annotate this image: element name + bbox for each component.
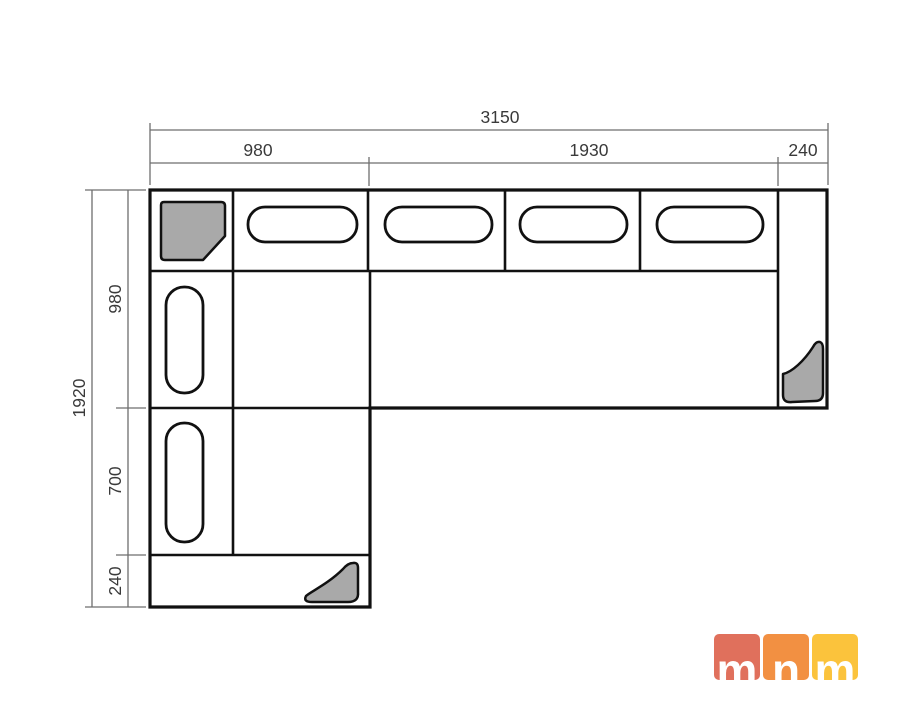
back-cushion-2: [385, 207, 492, 242]
mnm-logo: m n m: [714, 634, 858, 680]
back-cushion-1: [248, 207, 357, 242]
side-cushion-2: [166, 423, 203, 542]
dim-label-top-left: 980: [243, 140, 272, 160]
side-cushion-1: [166, 287, 203, 393]
back-cushion-4: [657, 207, 763, 242]
logo-tile-3: m: [812, 634, 858, 680]
dimensions-top: 3150 980 1930 240: [150, 107, 828, 186]
sofa-body: [150, 190, 827, 607]
dim-label-top-total: 3150: [481, 107, 520, 127]
dimensions-left: 1920 980 700 240: [69, 190, 146, 607]
logo-tile-2: n: [763, 634, 809, 680]
logo-letter-1: m: [717, 647, 758, 680]
dim-label-left-mid: 700: [105, 466, 125, 495]
dim-label-top-right: 240: [788, 140, 817, 160]
sofa-outline: [150, 190, 827, 607]
dim-label-left-bottom: 240: [105, 566, 125, 595]
logo-letter-2: n: [772, 647, 800, 680]
dim-label-left-total: 1920: [69, 378, 89, 417]
logo-letter-3: m: [815, 647, 856, 680]
dim-label-left-top: 980: [105, 284, 125, 313]
sofa-dimension-drawing: 3150 980 1930 240 1920 980 700 240 m n m: [0, 0, 900, 720]
logo-tile-1: m: [714, 634, 760, 680]
dim-label-top-mid: 1930: [570, 140, 609, 160]
sofa-plan-svg: 3150 980 1930 240 1920 980 700 240: [0, 0, 900, 720]
back-cushion-3: [520, 207, 627, 242]
